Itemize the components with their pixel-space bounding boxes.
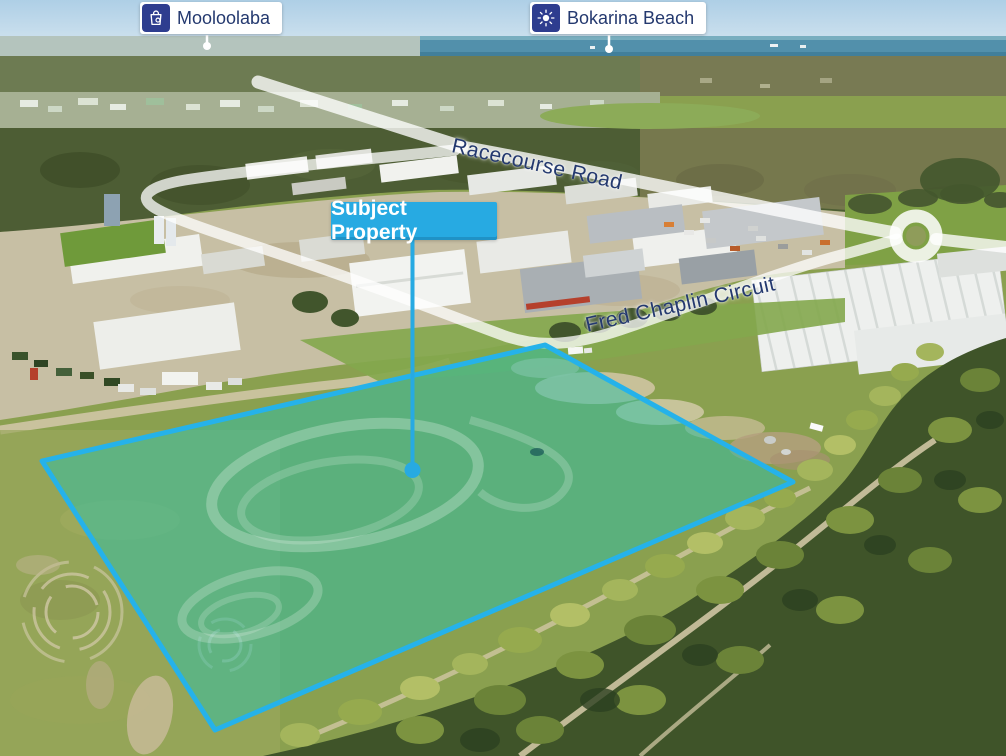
roundabout-island (906, 226, 926, 246)
poi-label-mooloolaba: Mooloolaba (140, 2, 282, 34)
sun-icon (532, 4, 560, 32)
horizon-suburbs (0, 56, 1006, 130)
aerial-photo: Mooloolaba Bokarina Beach Racecourse Roa… (0, 0, 1006, 756)
poi-label-text: Bokarina Beach (567, 9, 694, 27)
shopping-bag-icon (142, 4, 170, 32)
pointer-dot (405, 462, 421, 478)
racecourse-road-east-highlight (936, 239, 1006, 247)
aerial-photo-scene (0, 0, 1006, 756)
ocean (420, 36, 1006, 58)
poi-label-bokarina-beach: Bokarina Beach (530, 2, 706, 34)
subject-property-label: Subject Property (331, 202, 497, 240)
poi-label-text: Mooloolaba (177, 9, 270, 27)
